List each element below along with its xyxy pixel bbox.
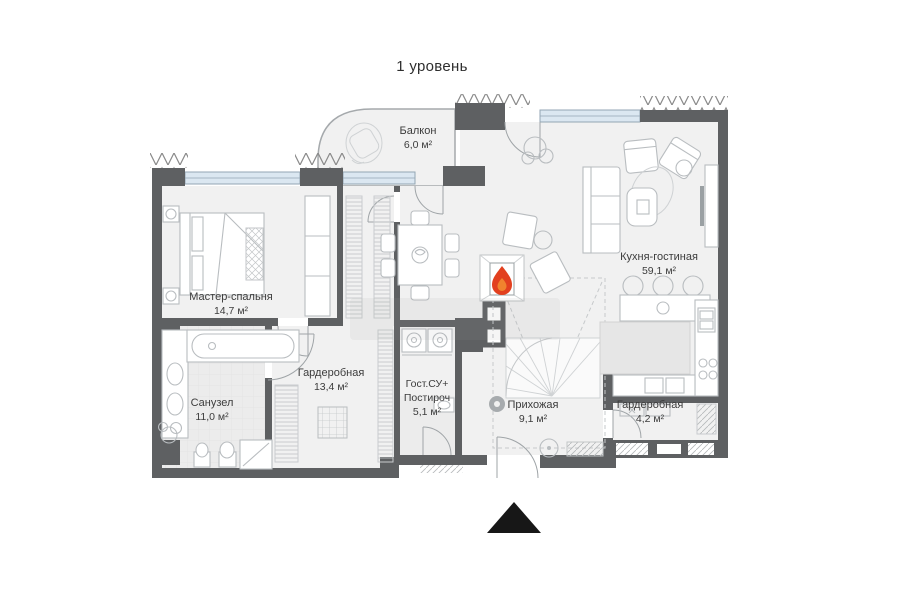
fireplace	[480, 255, 524, 301]
nightstand	[163, 288, 179, 304]
room-area: 9,1 м²	[508, 413, 559, 427]
room-name: Мастер-спальня	[189, 290, 272, 305]
bidet	[194, 443, 210, 467]
label-wardrobe-main: Гардеробная 13,4 м²	[298, 366, 365, 394]
page-title: 1 уровень	[396, 58, 467, 75]
room-name: Гост.СУ+	[404, 378, 450, 392]
bed-bench	[246, 228, 263, 280]
label-wardrobe-entry: Гардеробная 4,2 м²	[617, 398, 684, 426]
label-bathroom: Санузел 11,0 м²	[191, 396, 234, 424]
room-area: 4,2 м²	[617, 413, 684, 427]
kitchen-island	[600, 322, 690, 374]
bench	[567, 442, 603, 456]
armchair	[623, 138, 658, 173]
label-hallway: Прихожая 9,1 м²	[508, 398, 559, 426]
room-area: 14,7 м²	[189, 305, 272, 319]
room-name: Балкон	[400, 124, 437, 139]
sofa	[583, 167, 620, 253]
watermark	[350, 298, 560, 340]
room-name: Санузел	[191, 396, 234, 411]
room-name: Гардеробная	[298, 366, 365, 381]
vanity	[162, 330, 188, 438]
shower	[240, 440, 272, 469]
flower-decor	[489, 396, 505, 412]
room-area: 6,0 м²	[400, 139, 437, 153]
room-area: 11,0 м²	[191, 411, 234, 425]
room-name: Постироч	[404, 392, 450, 406]
room-name: Гардеробная	[617, 398, 684, 413]
nightstand	[163, 206, 179, 222]
wardrobe-island	[318, 407, 347, 438]
bathtub	[187, 330, 299, 362]
floorplan-drawing	[0, 0, 900, 600]
room-area: 13,4 м²	[298, 381, 365, 395]
label-kitchen-living: Кухня-гостиная 59,1 м²	[620, 250, 698, 278]
entrance-arrow	[487, 502, 541, 533]
toilet	[219, 442, 236, 467]
floorplan-page: 1 уровень Балкон 6,0 м² Мастер-спальня 1…	[0, 0, 900, 600]
room-area: 59,1 м²	[620, 265, 698, 279]
room-name: Кухня-гостиная	[620, 250, 698, 265]
room-name: Прихожая	[508, 398, 559, 413]
label-guest-wc: Гост.СУ+ Постироч 5,1 м²	[404, 378, 450, 420]
coffee-table	[627, 188, 657, 226]
fireplace-chair	[502, 212, 537, 250]
room-area: 5,1 м²	[404, 406, 450, 420]
label-master-bedroom: Мастер-спальня 14,7 м²	[189, 290, 272, 318]
bedroom-console	[305, 196, 330, 316]
label-balcony: Балкон 6,0 м²	[400, 124, 437, 152]
